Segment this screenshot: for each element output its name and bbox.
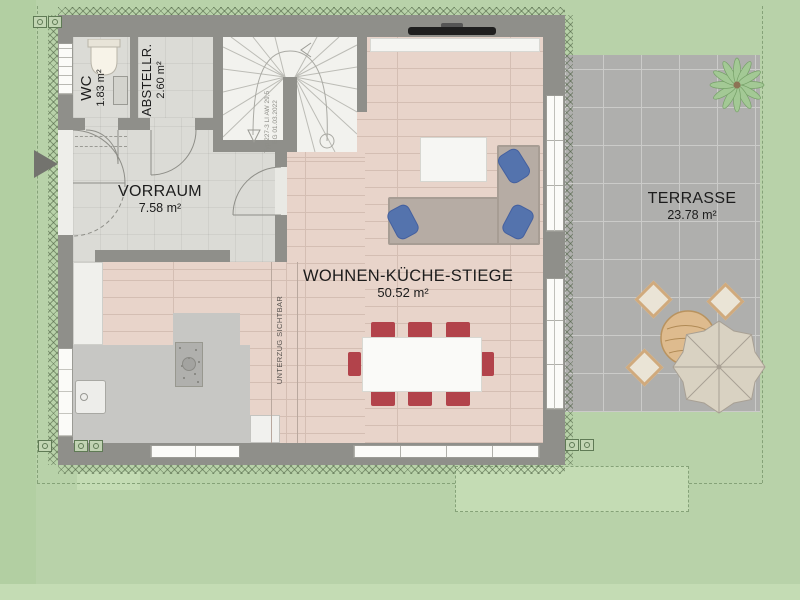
wall-stairs-right (357, 37, 367, 112)
door-arc-abstellraum (150, 118, 198, 178)
drain-icon (48, 16, 62, 28)
drain-icon (580, 439, 594, 451)
room-name: WC (78, 48, 95, 128)
dining-chair (446, 390, 470, 406)
dining-chair (446, 322, 470, 338)
room-name: ABSTELLR. (140, 35, 155, 125)
room-label-terrasse: TERRASSE 23.78 m² (617, 190, 767, 224)
drain-icon (74, 440, 88, 452)
dining-chair (408, 322, 432, 338)
dining-chair (371, 322, 395, 338)
room-area: 7.58 m² (85, 201, 235, 215)
lawn-band-bottom (0, 584, 800, 600)
wardrobe-cabinet (73, 262, 103, 345)
drain-icon (565, 439, 579, 451)
room-area: 2.60 m² (155, 35, 168, 125)
terrace-door-lower (546, 278, 564, 410)
insulation-hatch-bottom (58, 465, 565, 474)
drain-icon (89, 440, 103, 452)
room-area: 50.52 m² (303, 286, 503, 301)
dining-chair (481, 352, 494, 376)
dining-chair (408, 390, 432, 406)
tv (408, 27, 496, 35)
room-name: VORRAUM (85, 183, 235, 201)
vorraum-dashed-line (75, 146, 127, 147)
insulation-hatch-left (48, 15, 58, 465)
cooktop-speckles (179, 347, 181, 349)
beam-line (271, 262, 272, 443)
dining-chair (348, 352, 361, 376)
room-area: 23.78 m² (617, 208, 767, 222)
drain-icon (38, 440, 52, 452)
room-label-abstellraum: ABSTELLR. 2.60 m² (140, 35, 174, 125)
cooktop-burner (182, 357, 196, 371)
window-wc (58, 43, 73, 95)
kitchen-cabinet-white (250, 415, 280, 443)
room-area: 1.83 m² (95, 48, 108, 128)
wall-wc-abstellraum (130, 37, 138, 118)
plant-icon (708, 56, 766, 114)
vorraum-dashed-line (75, 136, 127, 137)
wall-abstellraum-stairs (213, 37, 223, 152)
terrace-door-upper (546, 95, 564, 232)
property-line-bottom-right (689, 483, 762, 484)
staircase (223, 37, 357, 152)
lawn-band-left (0, 0, 36, 600)
room-name: WOHNEN-KÜCHE-STIEGE (303, 267, 503, 286)
floor-plan: Typ 227-3 LI AW 29,5 EG 01.03.2022 UNTER… (0, 0, 800, 600)
window-kitchen-left (58, 348, 73, 437)
drain-icon (33, 16, 47, 28)
coffee-table (420, 137, 487, 182)
wall-vorraum-right-2 (275, 215, 287, 262)
property-line-left (37, 6, 38, 483)
window-kitchen-bottom (150, 445, 240, 458)
entrance-arrow-icon (34, 150, 60, 178)
sink-drain (80, 393, 88, 401)
room-label-wohnen: WOHNEN-KÜCHE-STIEGE 50.52 m² (303, 267, 503, 303)
stair-note: Typ 227-3 LI AW 29,5 EG 01.03.2022 (264, 82, 280, 162)
wc-cabinet (113, 76, 128, 105)
room-label-vorraum: VORRAUM 7.58 m² (85, 183, 235, 217)
insulation-hatch-top (58, 7, 565, 15)
property-line-bottom-left (37, 483, 455, 484)
wall-vorraum-bottom (95, 250, 230, 262)
beam-note: UNTERZUG SICHTBAR (275, 285, 293, 395)
dining-chair (371, 390, 395, 406)
stair-note-line1: Typ 227-3 LI AW 29,5 (264, 82, 272, 162)
beam-line (297, 262, 298, 443)
parasol (671, 319, 767, 415)
door-arc-living (229, 165, 284, 220)
dining-table (362, 337, 482, 392)
lawn-pad-small (77, 472, 140, 490)
room-label-wc: WC 1.83 m² (78, 48, 112, 128)
window-living-bottom (353, 445, 540, 458)
room-name: TERRASSE (617, 190, 767, 208)
insulation-hatch-right (565, 15, 573, 465)
stair-note-line2: EG 01.03.2022 (272, 82, 280, 162)
sideboard (370, 38, 540, 52)
